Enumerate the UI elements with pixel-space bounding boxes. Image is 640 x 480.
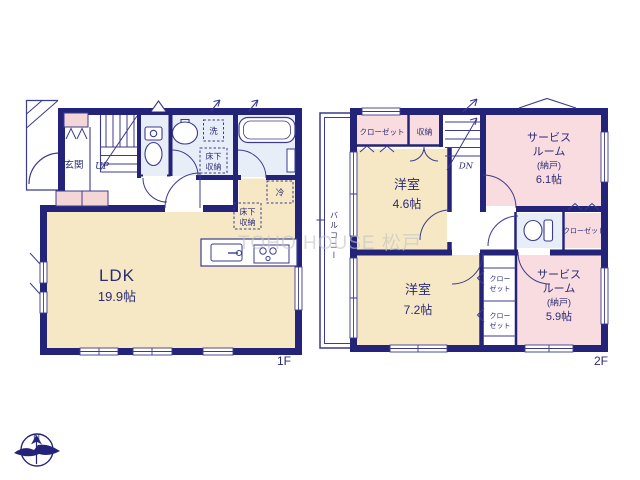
compass: N <box>14 432 60 466</box>
entrance-door-arc <box>29 153 60 184</box>
closet-right-label: クローゼット <box>563 226 605 235</box>
bedroom-b-name: 洋室 <box>405 282 431 297</box>
underfloor2-line1: 床下 <box>240 207 256 217</box>
porch-outline <box>27 101 61 191</box>
genkan-label: 玄関 <box>64 159 83 171</box>
fridge-label: 冷 <box>276 188 285 198</box>
floor2-label: 2F <box>594 354 608 368</box>
stairs-dn-label: DN <box>458 162 474 172</box>
service-a-size: 6.1帖 <box>536 173 562 186</box>
underfloor2-line2: 収納 <box>240 217 256 227</box>
watermark-text: TOHO HOUSE 松戸 <box>238 232 422 254</box>
service-a-name2: ルーム <box>533 145 566 158</box>
closet-small-a-line1: クロー <box>490 275 511 283</box>
toilet-1f-fixture <box>145 127 162 166</box>
service-a-sub: (納戸) <box>537 160 561 171</box>
bedroom-a-size: 4.6帖 <box>393 196 422 211</box>
storage-label: 収納 <box>417 127 433 137</box>
compass-north-label: N <box>33 432 40 443</box>
service-b-name2: ルーム <box>543 282 576 295</box>
underfloor1-line1: 床下 <box>206 151 222 161</box>
closet-top-label: クローゼット <box>360 127 405 137</box>
bedroom-b-size: 7.2帖 <box>404 302 433 317</box>
stairs-up-label: UP <box>95 162 110 172</box>
ldk-size: 19.9帖 <box>98 289 136 304</box>
floor1-label: 1F <box>277 354 291 368</box>
toilet-2f-fixture <box>524 220 553 241</box>
underfloor1-line2: 収納 <box>206 162 222 172</box>
floor-plan-drawing: 玄関 UP 洗 床下 収納 冷 床下 収納 LDK 19.9帖 1F <box>0 0 640 480</box>
closet-small-b-line2: ゼット <box>490 321 511 330</box>
service-b-size: 5.9帖 <box>546 310 572 323</box>
floor-plan-page: 玄関 UP 洗 床下 収納 冷 床下 収納 LDK 19.9帖 1F <box>0 0 640 480</box>
service-b-sub: (納戸) <box>547 297 571 308</box>
bedroom-a-name: 洋室 <box>394 177 420 192</box>
closet-small-b-line1: クロー <box>490 312 511 320</box>
room-bedroom-b-floor <box>357 255 479 345</box>
service-b-name1: サービス <box>537 268 581 281</box>
closet-small-a-line2: ゼット <box>490 284 511 293</box>
wash-label: 洗 <box>209 126 218 136</box>
service-a-name1: サービス <box>527 131 571 144</box>
ldk-name: LDK <box>99 266 135 285</box>
